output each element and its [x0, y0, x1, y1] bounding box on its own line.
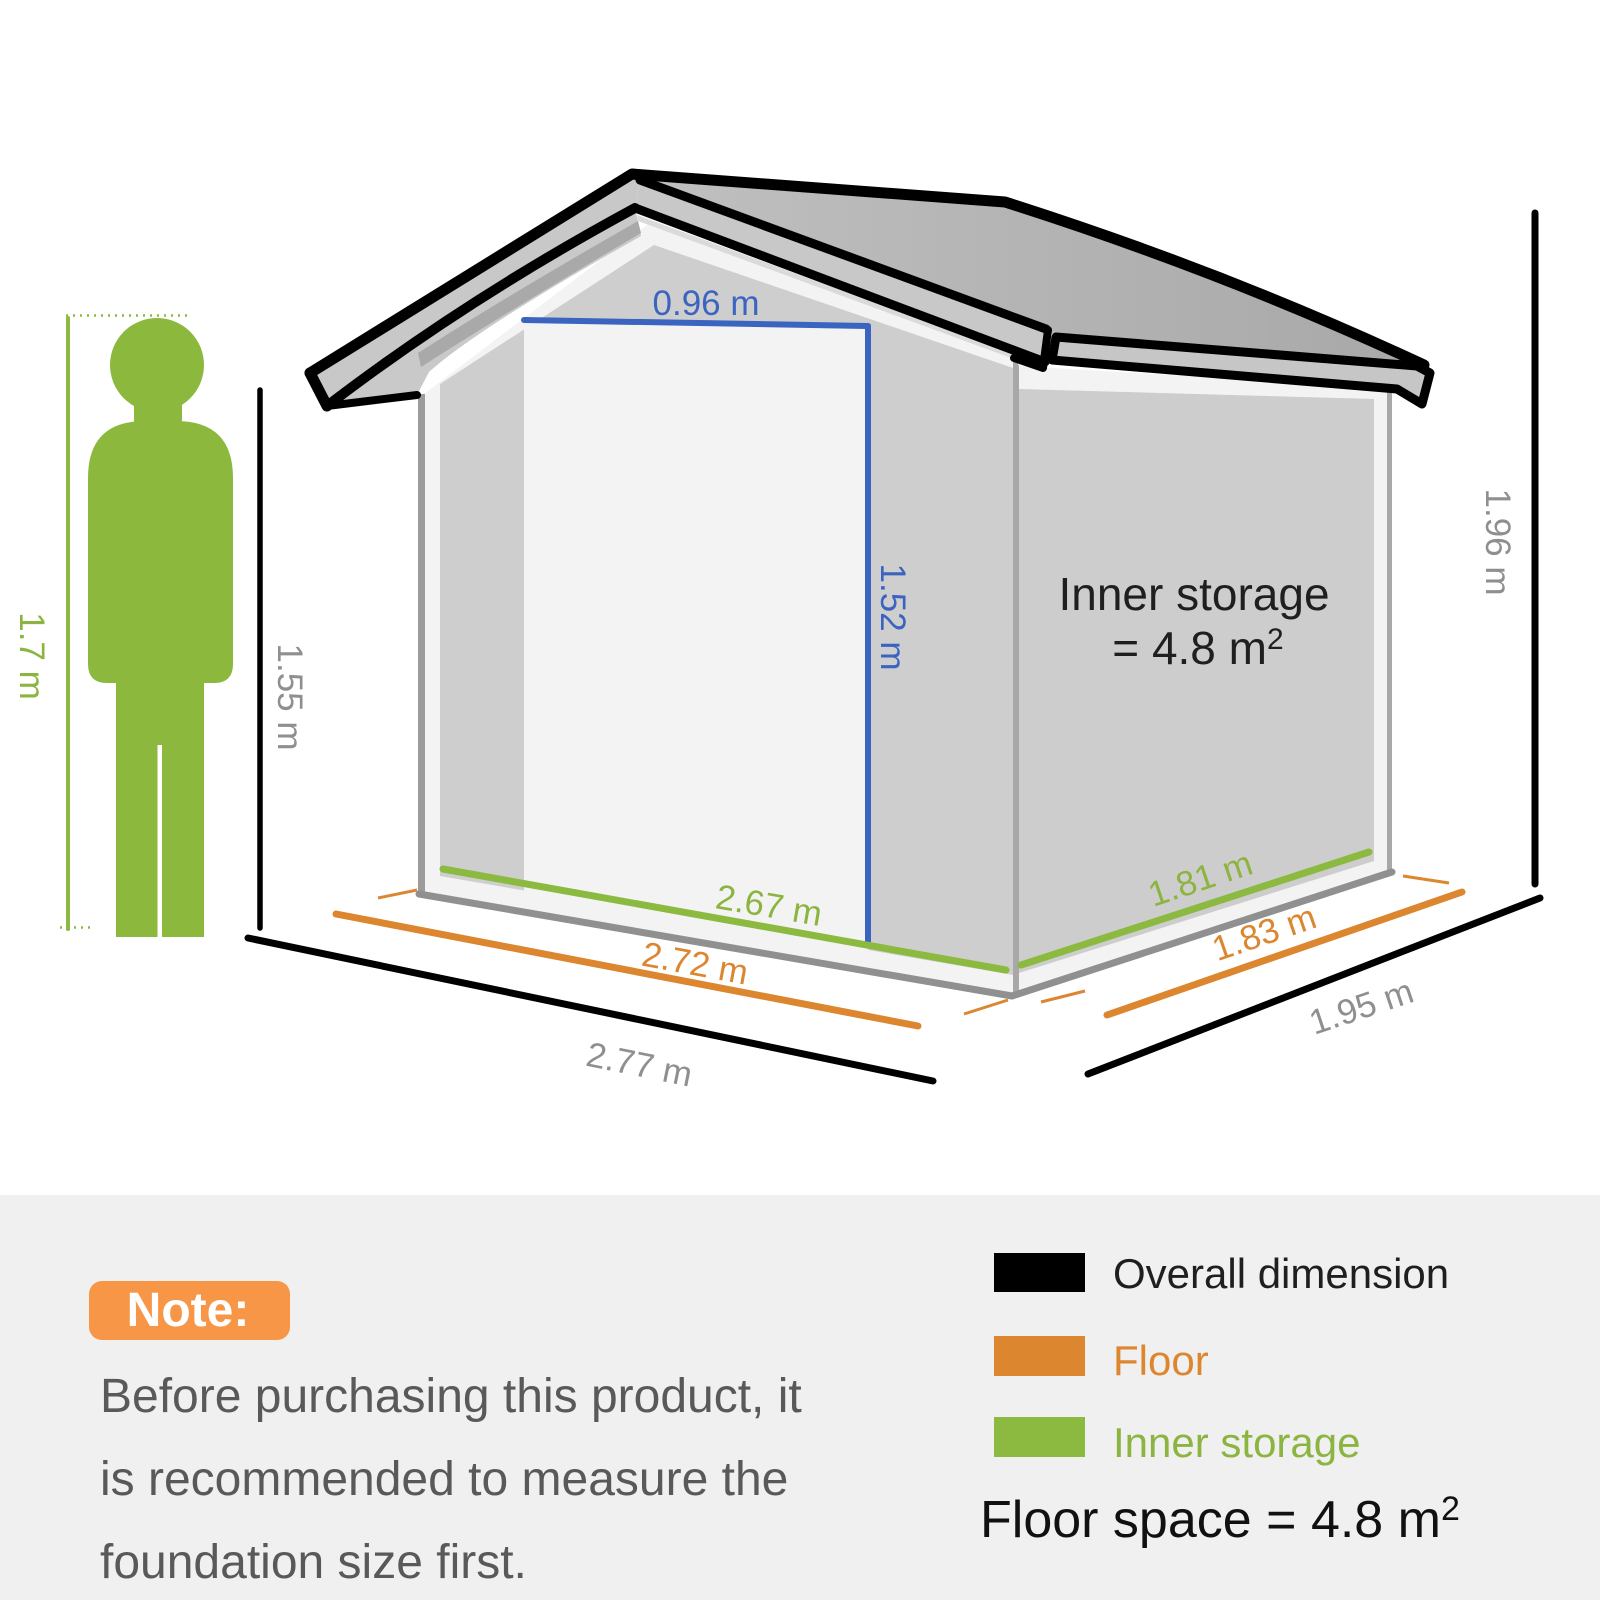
svg-text:Floor space = 4.8 m2: Floor space = 4.8 m2: [980, 1490, 1460, 1549]
svg-text:foundation size first.: foundation size first.: [100, 1536, 527, 1589]
svg-text:0.96 m: 0.96 m: [653, 284, 760, 323]
svg-text:1.96 m: 1.96 m: [1478, 489, 1517, 596]
svg-text:Inner storage: Inner storage: [1058, 568, 1329, 620]
svg-text:Floor: Floor: [1113, 1337, 1209, 1384]
svg-text:is recommended to measure the: is recommended to measure the: [100, 1453, 788, 1506]
svg-text:Overall dimension: Overall dimension: [1113, 1250, 1449, 1297]
svg-text:Note:: Note:: [127, 1284, 250, 1337]
svg-text:Inner storage: Inner storage: [1113, 1419, 1361, 1466]
svg-text:1.52 m: 1.52 m: [873, 564, 912, 671]
svg-text:= 4.8 m2: = 4.8 m2: [1112, 622, 1283, 674]
svg-text:Before purchasing this product: Before purchasing this product, it: [100, 1370, 802, 1423]
svg-text:1.55 m: 1.55 m: [270, 644, 309, 751]
svg-text:1.7 m: 1.7 m: [12, 612, 51, 700]
